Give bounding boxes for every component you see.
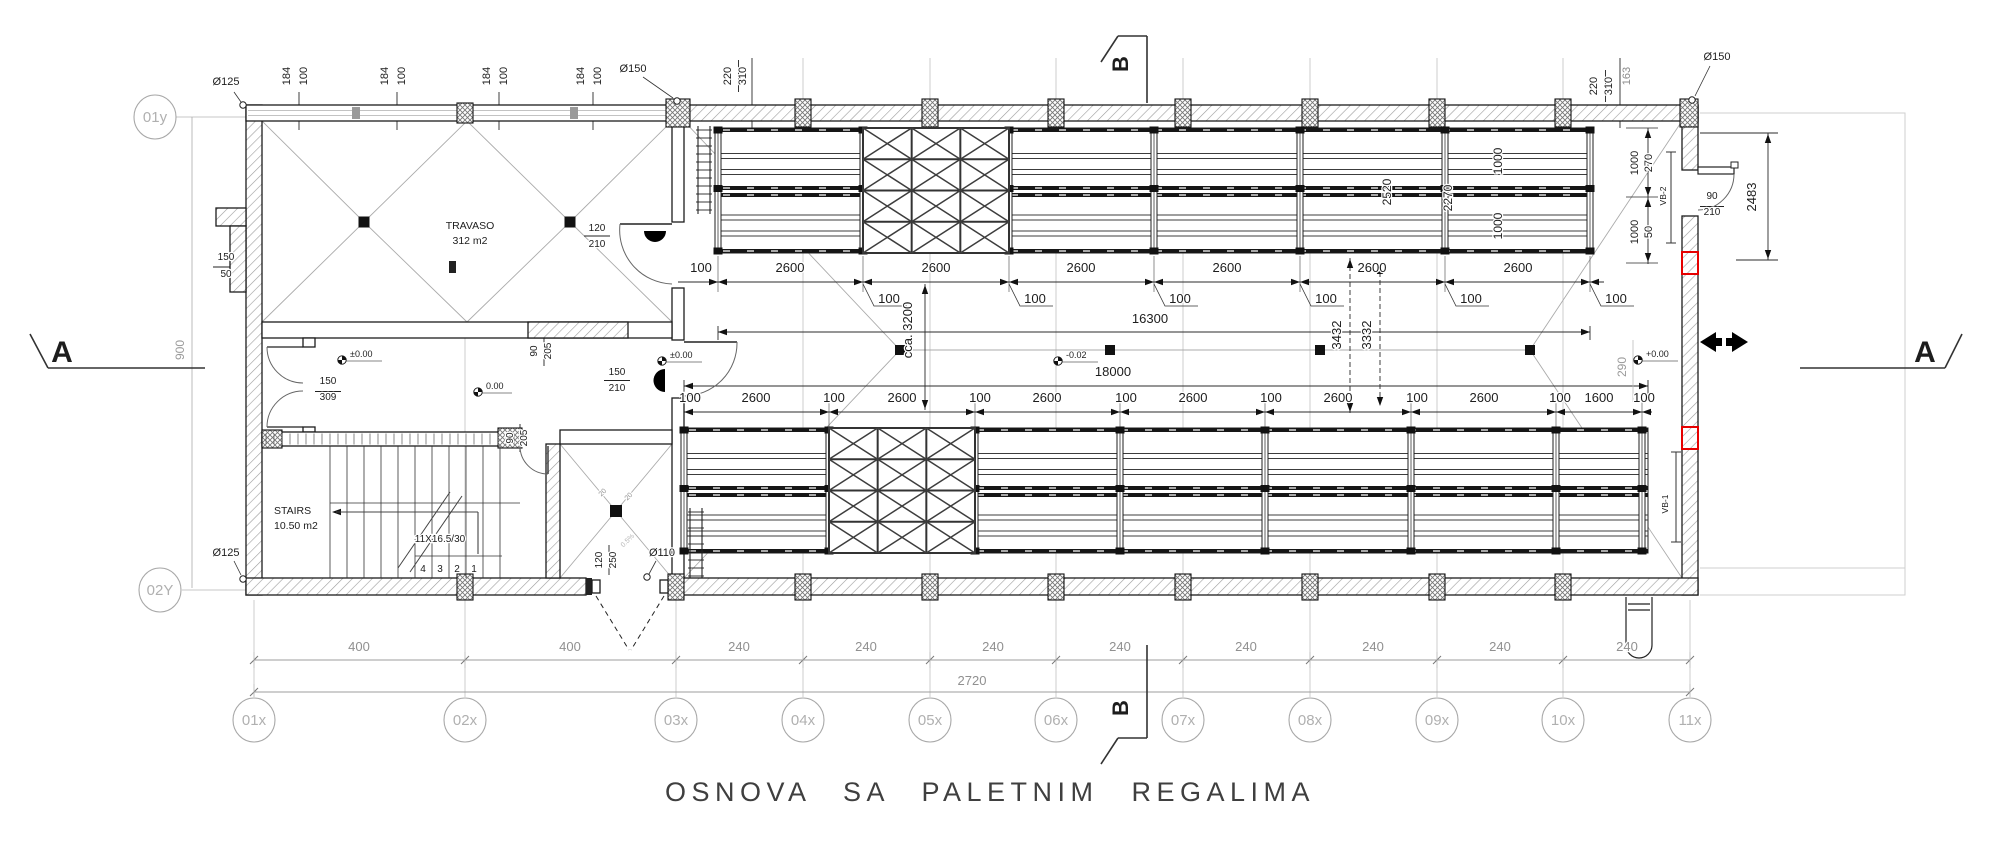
door-dim: 2483 [1744, 183, 1759, 212]
shaft-dim: 20 [624, 492, 635, 503]
level-label: 0.00 [486, 381, 504, 391]
chain-dim: 100 [1460, 291, 1482, 306]
door-dim: 120 [594, 551, 605, 568]
step-number: 1 [471, 564, 477, 575]
highlight-opening-vb2 [1682, 252, 1698, 274]
grid-dim: 400 [348, 639, 370, 654]
door-dim: 250 [608, 551, 619, 568]
rack-dim: 2270 [1441, 184, 1455, 211]
grid-total-dim: 2720 [958, 673, 987, 688]
window-dim: 100 [396, 67, 408, 85]
door-dim: 150 [609, 367, 626, 378]
chain-dim: 100 [679, 390, 701, 405]
site-context-lines [1700, 113, 1905, 595]
grid-bubble-label: 05x [918, 712, 943, 729]
drain-label-125-bottom: Ø125 [213, 547, 240, 559]
room-stairs-area: 10.50 m2 [274, 520, 318, 532]
door-dim: 150 [320, 376, 337, 387]
door-dim: 210 [1704, 207, 1721, 218]
door-dim: 205 [519, 429, 530, 446]
wall-dim: 163 [1621, 67, 1633, 85]
chain-dim: 2600 [1358, 260, 1387, 275]
grid-dim: 240 [728, 639, 750, 654]
chimney-dim: 150 [218, 252, 235, 263]
drain-150-left-icon [674, 98, 680, 104]
chain-dim: 100 [1315, 291, 1337, 306]
grid-bubble-label: 08x [1298, 712, 1323, 729]
wall-dim: 310 [737, 67, 749, 85]
opening-tag: VB-1 [1660, 494, 1670, 513]
chain-dim: 100 [1260, 390, 1282, 405]
window-dim: 184 [481, 67, 493, 85]
door-dim: 210 [609, 383, 626, 394]
chain-dim: 1600 [1585, 390, 1614, 405]
grid-dim: 240 [1235, 639, 1257, 654]
drain-label-150-left: Ø150 [620, 63, 647, 75]
section-letter-b-bottom: B [1108, 700, 1133, 716]
grid-bubble-label: 02Y [147, 582, 174, 599]
chain-dim: 2600 [742, 390, 771, 405]
rack-dim: 50 [1643, 226, 1655, 238]
grid-dim: 240 [1616, 639, 1638, 654]
room-stairs-name: STAIRS [274, 505, 311, 517]
chain-dim: 2600 [1179, 390, 1208, 405]
wall-dim: 310 [1603, 77, 1615, 95]
window-dim: 100 [298, 67, 310, 85]
section-letter-a-right: A [1914, 336, 1936, 369]
shaft-dim: 20 [598, 488, 609, 499]
chain-dim: 2600 [1504, 260, 1533, 275]
rack-dim: 1000 [1491, 147, 1505, 174]
rack-dim: 270 [1643, 154, 1655, 172]
chain-dim: 100 [969, 390, 991, 405]
rack-dim: 1000 [1629, 220, 1641, 244]
door-dim: 90 [1706, 191, 1718, 202]
section-letter-a-left: A [51, 336, 73, 369]
chain-dim: 2600 [1067, 260, 1096, 275]
step-number: 3 [437, 564, 443, 575]
grid-bubble-label: 03x [664, 712, 689, 729]
floor-plan-drawing: 01x02x03x04x05x06x07x08x09x10x11x01y02Y … [0, 0, 2000, 852]
chain-dim: 100 [1115, 390, 1137, 405]
window-dim: 100 [592, 67, 604, 85]
drain-125-top-icon [240, 102, 246, 108]
chain-dim: 100 [690, 260, 712, 275]
grid-dim: 240 [855, 639, 877, 654]
step-number: 4 [420, 564, 426, 575]
pallet-racks [680, 127, 1649, 555]
door-dim: 309 [320, 392, 337, 403]
chain-dim: 100 [1169, 291, 1191, 306]
grid-dim: 290 [1615, 357, 1629, 377]
drain-125-bottom-icon [240, 576, 246, 582]
rack-dim: 2520 [1380, 178, 1394, 205]
grid-bubble-label: 01x [242, 712, 267, 729]
chain-dim: 2600 [1470, 390, 1499, 405]
chimney-dim: 50 [220, 269, 232, 280]
drain-110-icon [644, 574, 650, 580]
grid-dim: 900 [173, 340, 187, 360]
chain-dim: 100 [823, 390, 845, 405]
stairs-note: 11X16.5/30 [415, 534, 466, 545]
drain-label-150-right: Ø150 [1704, 51, 1731, 63]
door-dim: 205 [543, 342, 554, 359]
grid-dim: 400 [559, 639, 581, 654]
window-dim: 184 [575, 67, 587, 85]
opening-tag: VB-2 [1658, 186, 1668, 205]
grid-bubble-label: 11x [1678, 712, 1702, 729]
grid-dim: 240 [1109, 639, 1131, 654]
chain-dim: 100 [878, 291, 900, 306]
chain-dim: 100 [1549, 390, 1571, 405]
floor-plan-canvas: 01x02x03x04x05x06x07x08x09x10x11x01y02Y … [0, 0, 2000, 852]
slope-label: 0.5% [620, 533, 636, 549]
door-dim: 210 [589, 239, 606, 250]
chain-dim: 100 [1024, 291, 1046, 306]
window-dim: 100 [498, 67, 510, 85]
grid-dim: 240 [982, 639, 1004, 654]
chain-dim: 100 [1633, 390, 1655, 405]
highlight-opening-vb1 [1682, 427, 1698, 449]
drain-label-110: Ø110 [649, 547, 675, 559]
aisle-dim: cca. 3200 [900, 302, 915, 358]
grid-bubble-label: 10x [1551, 712, 1576, 729]
rack-dim: 1000 [1491, 212, 1505, 239]
wall-dim: 220 [722, 67, 734, 85]
grid-bubble-label: 06x [1044, 712, 1069, 729]
chain-dim: 2600 [888, 390, 917, 405]
door-dim: 120 [589, 223, 606, 234]
level-label: ±0.00 [350, 349, 372, 359]
window-dim: 184 [379, 67, 391, 85]
grid-bubble-label: 02x [453, 712, 478, 729]
level-label: -0.02 [1066, 350, 1087, 360]
room-travaso-area: 312 m2 [452, 235, 487, 247]
chain-dim: 2600 [1213, 260, 1242, 275]
chain-dim: 2600 [1324, 390, 1353, 405]
level-label: ±0.00 [670, 350, 692, 360]
total-dim: 18000 [1095, 364, 1131, 379]
room-travaso-name: TRAVASO [446, 220, 495, 232]
chain-dim: 2600 [776, 260, 805, 275]
grid-bubble-label: 01y [143, 109, 168, 126]
grid-dim: 240 [1489, 639, 1511, 654]
door-dim: 90 [529, 345, 540, 357]
chain-dim: 100 [1406, 390, 1428, 405]
grid-bubble-label: 04x [791, 712, 816, 729]
chain-dim: 100 [1605, 291, 1627, 306]
chain-dim: 2600 [922, 260, 951, 275]
grid-bubble-label: 09x [1425, 712, 1450, 729]
aisle-dim: 3432 [1329, 321, 1344, 350]
wall-dim: 220 [1588, 77, 1600, 95]
rack-dim: 1000 [1629, 151, 1641, 175]
entrance-direction-arrows-icon [1700, 332, 1748, 352]
grid-bubble-label: 07x [1171, 712, 1196, 729]
door-dim: 90 [505, 432, 516, 444]
level-label: +0.00 [1646, 349, 1669, 359]
drain-150-right-icon [1689, 97, 1695, 103]
step-number: 2 [454, 564, 460, 575]
section-letter-b-top: B [1108, 56, 1133, 72]
aisle-dim: 3332 [1359, 321, 1374, 350]
window-dim: 184 [281, 67, 293, 85]
grid-dim: 240 [1362, 639, 1384, 654]
drawing-title: OSNOVA SA PALETNIM REGALIMA [665, 777, 1315, 807]
total-dim: 16300 [1132, 311, 1168, 326]
drain-label-125-top: Ø125 [213, 76, 240, 88]
chain-dim: 2600 [1033, 390, 1062, 405]
